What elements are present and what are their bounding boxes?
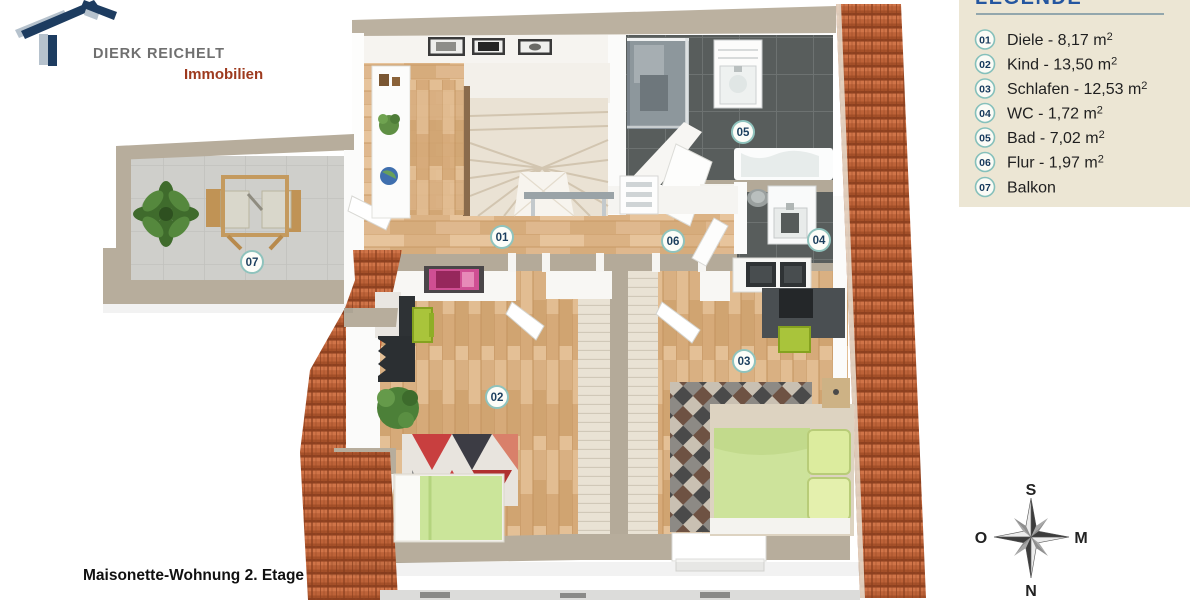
svg-text:01: 01	[979, 35, 991, 47]
svg-text:03: 03	[979, 84, 991, 96]
svg-text:DIERK REICHELT: DIERK REICHELT	[93, 46, 225, 62]
svg-text:Balkon: Balkon	[1007, 180, 1056, 197]
svg-text:03: 03	[738, 356, 751, 368]
svg-text:07: 07	[246, 257, 259, 269]
svg-text:N: N	[1025, 583, 1037, 600]
svg-text:Diele - 8,17 m2: Diele - 8,17 m2	[1007, 31, 1113, 49]
svg-text:WC - 1,72 m2: WC - 1,72 m2	[1007, 105, 1103, 123]
svg-text:02: 02	[979, 59, 991, 71]
svg-text:Flur - 1,97 m2: Flur - 1,97 m2	[1007, 154, 1104, 172]
svg-text:07: 07	[979, 182, 991, 194]
svg-text:O: O	[975, 530, 987, 547]
svg-text:06: 06	[979, 157, 991, 169]
svg-text:Maisonette-Wohnung 2. Etage: Maisonette-Wohnung 2. Etage	[83, 567, 304, 584]
svg-text:Bad - 7,02 m2: Bad - 7,02 m2	[1007, 129, 1105, 147]
svg-text:04: 04	[813, 235, 826, 247]
svg-text:LEGENDE: LEGENDE	[975, 0, 1082, 9]
svg-text:Kind - 13,50 m2: Kind - 13,50 m2	[1007, 56, 1117, 74]
svg-text:05: 05	[737, 127, 750, 139]
svg-text:01: 01	[496, 232, 509, 244]
svg-text:05: 05	[979, 133, 991, 145]
svg-text:S: S	[1026, 482, 1037, 499]
svg-text:04: 04	[979, 108, 991, 120]
svg-text:Schlafen - 12,53 m2: Schlafen - 12,53 m2	[1007, 80, 1147, 98]
svg-text:M: M	[1074, 530, 1087, 547]
svg-text:02: 02	[491, 392, 504, 404]
svg-text:06: 06	[667, 236, 680, 248]
svg-text:Immobilien: Immobilien	[184, 66, 263, 83]
